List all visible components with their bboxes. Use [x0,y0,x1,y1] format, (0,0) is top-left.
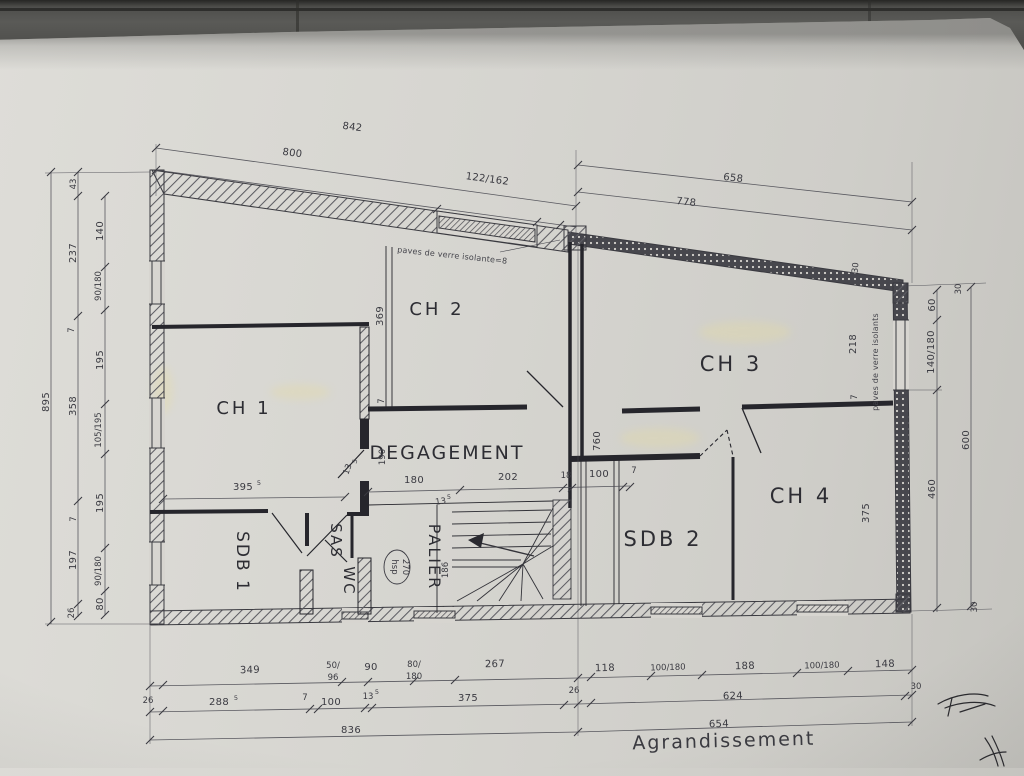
note-glass-blocks-top: paves de verre isolante=8 [397,245,508,266]
dim-26-row2-left: 26 [143,696,154,706]
dim-180-bottom: 180 [406,672,422,682]
dim-188: 188 [735,661,755,673]
door-bottom [414,607,455,623]
dim-100-bottom: 100 [321,697,341,708]
interior-walls [150,242,893,614]
dim-43: 43 [69,179,79,190]
dim-13-ch1: 13 [342,463,355,477]
dim-96: 96 [328,673,339,683]
dim-7-ch2: 7 [377,398,387,403]
dim-349: 349 [240,665,260,676]
dim-148: 148 [875,659,895,671]
room-label-sdb2: SDB 2 [624,527,703,551]
dim-842: 842 [342,121,363,135]
dim-395: 395 [233,482,253,493]
room-label-degagement: DEGAGEMENT [370,442,525,464]
dim-13-stair: 13 [435,496,447,507]
dim-80-bottom: 80/ [407,660,421,670]
window-bottom-3 [797,601,848,616]
signature [938,694,1006,766]
dim-90: 90 [364,662,377,673]
dim-18: 18 [561,471,572,481]
dim-30-right-bottom: 30 [970,602,980,613]
dim-195-a: 195 [95,350,106,370]
room-label-palier: PALIER [425,524,444,590]
staircase [452,500,571,601]
dim-13-bottom-sup: 5 [375,688,379,696]
window-left-3 [149,542,165,585]
dim-180-deg: 180 [404,475,424,486]
dim-654: 654 [709,719,729,731]
dim-100-sdb2: 100 [589,469,609,480]
dim-7-sdb2: 7 [631,466,636,476]
dim-186: 186 [441,562,451,578]
room-label-ch4: CH 4 [770,484,833,508]
dim-60: 60 [927,298,938,311]
dim-375-bottom: 375 [458,693,478,704]
note-hsp: hsp [389,559,399,574]
dim-7-left-b: 7 [69,516,79,521]
plan-title: Agrandissement [632,728,816,755]
dim-358: 358 [68,396,79,416]
dim-202: 202 [498,472,518,483]
dim-100-180-b: 100/180 [804,661,840,672]
dim-50: 50/ [326,661,340,671]
dim-7-ch3: 7 [850,394,860,399]
dim-80: 80 [95,597,106,610]
dim-375-ch4: 375 [861,503,872,523]
dim-600: 600 [961,430,972,450]
room-label-wc: WC [340,566,358,595]
window-left-2 [149,398,165,448]
dim-105-195: 105/195 [94,412,104,447]
dim-13-stair-sup: 5 [447,493,451,501]
dim-895: 895 [41,392,52,412]
dim-195-b: 195 [95,493,106,513]
dim-197: 197 [68,550,79,570]
dim-395-sup: 5 [257,479,261,487]
room-label-ch1: CH 1 [216,398,271,419]
dim-800: 800 [282,147,303,161]
dim-760: 760 [592,431,603,451]
window-left-1 [149,261,165,304]
dim-30-right-top: 30 [954,284,964,295]
window-openings [149,261,909,623]
dim-26-left: 26 [67,608,77,619]
photo-scene: 842 800 122/162 658 778 paves de verre i… [0,0,1024,768]
dim-30-bottom: 30 [911,682,922,692]
room-label-sas: SAS [327,523,345,559]
dim-118: 118 [595,663,615,675]
dim-267: 267 [485,659,505,670]
dim-122-162: 122/162 [465,171,510,188]
dim-100-180-a: 100/180 [650,663,686,674]
dim-218: 218 [848,334,859,354]
window-bottom-2 [651,603,702,618]
room-label-sdb1: SDB 1 [232,531,252,593]
highlight-smudges [153,321,791,448]
dim-140-180: 140/180 [926,330,937,374]
dim-13-bottom: 13 [363,692,374,702]
dim-460: 460 [927,479,938,499]
dim-90-180-a: 90/180 [94,271,104,301]
dim-140-left: 140 [95,221,106,241]
note-glass-blocks-right: paves de verre isolants [871,313,880,411]
window-right [893,320,909,390]
note-hsp-270: 270 [400,559,410,575]
dim-624: 624 [723,691,743,703]
dim-30-top-right: 30 [851,262,862,274]
dim-190: 190 [378,449,388,465]
dim-369: 369 [375,306,386,326]
room-label-ch2: CH 2 [409,299,464,320]
dim-237: 237 [68,243,79,263]
dim-288-sup: 5 [234,694,238,702]
dim-26-junction: 26 [569,686,580,696]
dim-7-bottom: 7 [302,693,307,703]
dim-658: 658 [723,172,744,185]
dim-836: 836 [341,725,361,736]
room-label-ch3: CH 3 [700,352,763,376]
dim-90-180-b: 90/180 [94,556,104,586]
floor-plan-drawing: 842 800 122/162 658 778 paves de verre i… [0,0,1024,768]
dim-778: 778 [676,196,697,209]
dim-288: 288 [209,697,229,708]
dim-7-left-a: 7 [67,327,77,332]
